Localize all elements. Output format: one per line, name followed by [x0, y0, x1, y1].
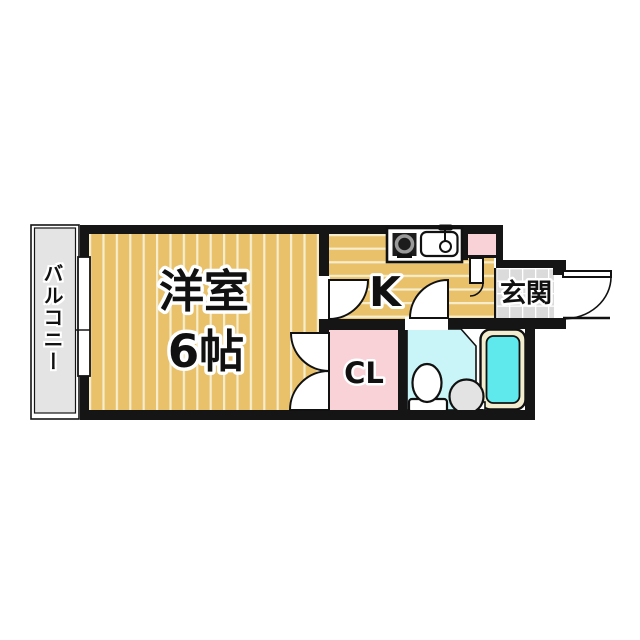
floor-plan-drawing: 洋室 6帖 K 玄関 CL	[0, 0, 640, 640]
entry-door-leaf	[563, 271, 611, 277]
western-room-floor	[89, 234, 319, 410]
western-room-label: 洋室	[159, 265, 249, 318]
storage-nook	[468, 234, 496, 256]
bathtub-water	[487, 336, 520, 403]
balcony-label: バルコニー	[38, 263, 67, 383]
bathroom	[407, 329, 526, 414]
sink-faucet-spout	[438, 225, 453, 231]
western-room-size-label: 6帖	[168, 325, 244, 378]
wall-bath-right	[525, 329, 535, 420]
kitchen-label: K	[369, 268, 403, 316]
door-leaf-nook	[470, 258, 483, 283]
stove-burner	[397, 236, 413, 252]
entrance-label: 玄関	[500, 278, 552, 309]
toilet	[413, 364, 442, 402]
closet-label: CL	[344, 356, 384, 390]
wall-entrance-top	[496, 260, 566, 268]
entry-door-swing	[563, 277, 611, 319]
entrance-step-line	[494, 268, 496, 318]
wall-bottom	[80, 410, 535, 420]
floor-plan-page: 洋室 6帖 K 玄関 CL バルコニー	[0, 0, 640, 640]
window	[76, 257, 90, 376]
kitchen-counter	[387, 225, 462, 263]
wash-basin	[450, 380, 484, 414]
kitchen-sink	[421, 232, 458, 256]
stove-grill	[397, 254, 412, 259]
sink-drain	[440, 241, 451, 252]
wall-closet-top	[319, 319, 407, 330]
wall-bath-left	[398, 329, 407, 410]
